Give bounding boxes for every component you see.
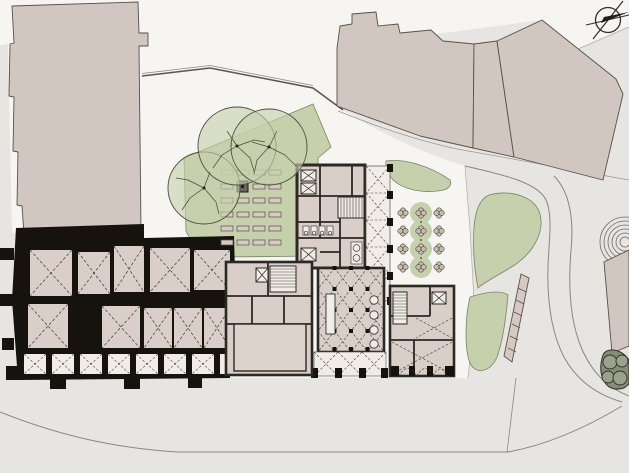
tree-cluster bbox=[601, 350, 629, 389]
plain-hall bbox=[234, 324, 306, 371]
column-hall bbox=[311, 266, 388, 378]
existing-south-arcade bbox=[24, 354, 230, 374]
site-plan-drawing: Ground-floor site plan: existing vaulted… bbox=[0, 0, 629, 473]
east-pavilion bbox=[390, 286, 454, 376]
stair-pavilion bbox=[393, 292, 407, 324]
kitchen-fixtures bbox=[351, 242, 362, 264]
context-building-west bbox=[9, 2, 148, 234]
hall-south-arcade bbox=[311, 352, 388, 378]
long-table bbox=[326, 294, 335, 334]
elevator-shaft bbox=[256, 268, 268, 282]
stair-lower bbox=[270, 266, 296, 292]
stair-upper bbox=[338, 197, 364, 218]
lower-left-block bbox=[226, 262, 312, 375]
pavilion-shaft bbox=[432, 292, 446, 304]
site-plan-canvas: Ground-floor site plan: existing vaulted… bbox=[0, 0, 629, 473]
existing-building bbox=[0, 224, 236, 389]
new-building-upper-block bbox=[297, 165, 365, 268]
